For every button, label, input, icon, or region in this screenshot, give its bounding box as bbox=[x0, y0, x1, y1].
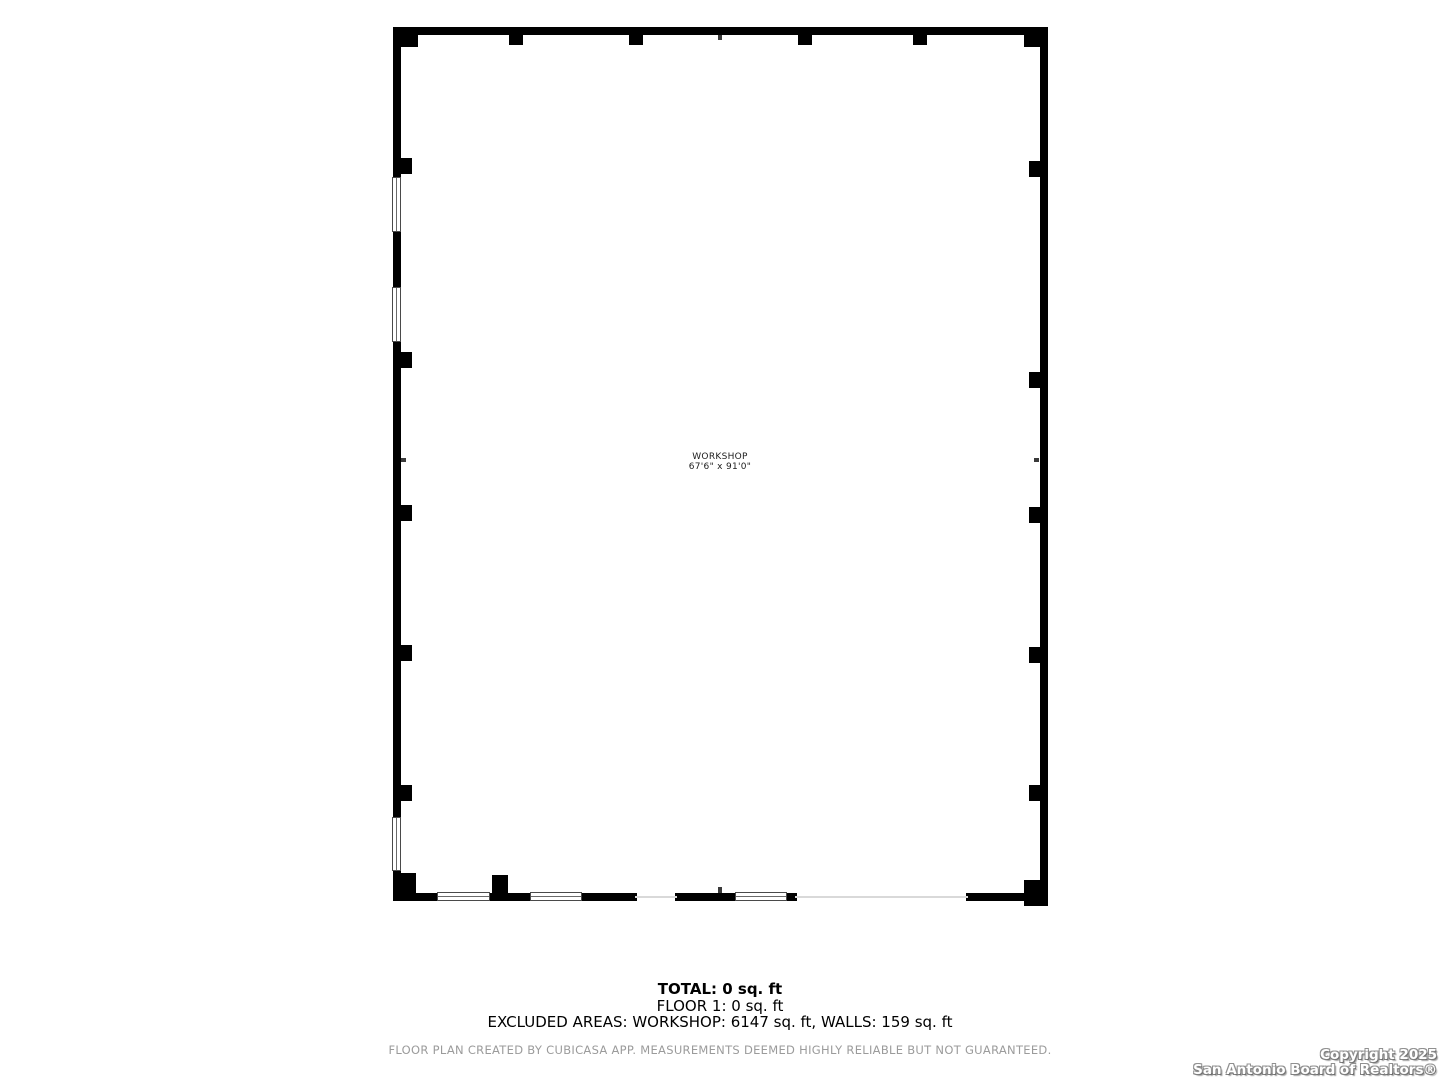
room-dimensions: 67'6" x 91'0" bbox=[520, 462, 920, 472]
area-summary: TOTAL: 0 sq. ft FLOOR 1: 0 sq. ft EXCLUD… bbox=[0, 981, 1440, 1031]
excluded-area-text: EXCLUDED AREAS: WORKSHOP: 6147 sq. ft, W… bbox=[0, 1014, 1440, 1031]
wall-tick bbox=[718, 887, 722, 893]
wall-bottom-segment bbox=[675, 893, 737, 901]
corner-pillar-top-left bbox=[393, 27, 418, 47]
pillar bbox=[798, 27, 812, 45]
corner-pillar-bottom-right bbox=[1024, 880, 1048, 906]
copyright-line: Copyright 2025 bbox=[1193, 1048, 1437, 1063]
window bbox=[392, 817, 401, 871]
wall-bottom-segment bbox=[580, 893, 637, 901]
window bbox=[392, 287, 401, 342]
wall-tick bbox=[401, 458, 406, 462]
pillar bbox=[393, 352, 412, 368]
pillar bbox=[629, 27, 643, 45]
wall-tick bbox=[718, 35, 722, 40]
room-label: WORKSHOP 67'6" x 91'0" bbox=[520, 452, 920, 472]
pillar bbox=[509, 27, 523, 45]
floor-area-text: FLOOR 1: 0 sq. ft bbox=[0, 998, 1440, 1015]
opening-boundary-line bbox=[635, 896, 677, 898]
window bbox=[392, 177, 401, 232]
floor-plan-page: WORKSHOP 67'6" x 91'0" TOTAL: 0 sq. ft F… bbox=[0, 0, 1440, 1080]
pillar bbox=[1029, 647, 1048, 663]
wall-bottom-segment bbox=[966, 893, 1028, 901]
pillar bbox=[492, 875, 508, 901]
wall-right bbox=[1040, 27, 1048, 906]
room-name: WORKSHOP bbox=[520, 452, 920, 462]
copyright-owner-line: San Antonio Board of Realtors® bbox=[1193, 1063, 1437, 1078]
opening-boundary-line bbox=[795, 896, 968, 898]
wall-tick bbox=[1034, 458, 1039, 462]
window bbox=[735, 892, 787, 901]
copyright-watermark: Copyright 2025 San Antonio Board of Real… bbox=[1193, 1048, 1437, 1077]
wall-top bbox=[393, 27, 1048, 35]
corner-pillar-bottom-left bbox=[393, 873, 416, 901]
pillar bbox=[393, 785, 412, 801]
corner-pillar-top-right bbox=[1024, 27, 1048, 47]
pillar bbox=[393, 645, 412, 661]
pillar bbox=[1029, 507, 1048, 523]
pillar bbox=[393, 158, 412, 174]
pillar bbox=[1029, 785, 1048, 801]
total-area-text: TOTAL: 0 sq. ft bbox=[0, 981, 1440, 998]
window bbox=[530, 892, 582, 901]
pillar bbox=[1029, 372, 1048, 388]
pillar bbox=[913, 27, 927, 45]
pillar bbox=[393, 505, 412, 521]
pillar bbox=[1029, 161, 1048, 177]
window bbox=[437, 892, 490, 901]
